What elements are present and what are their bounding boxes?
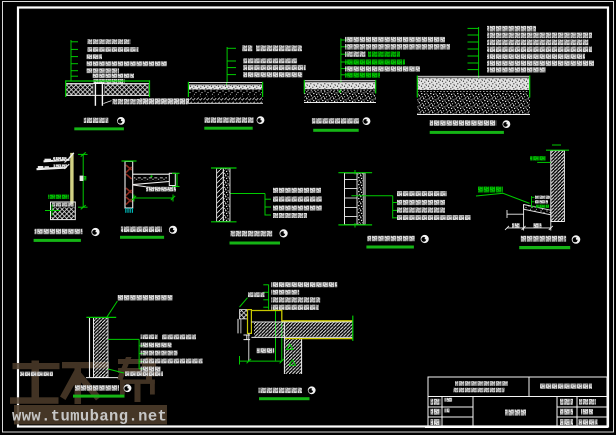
svg-text:www.tumubang.net: www.tumubang.net bbox=[12, 408, 167, 426]
